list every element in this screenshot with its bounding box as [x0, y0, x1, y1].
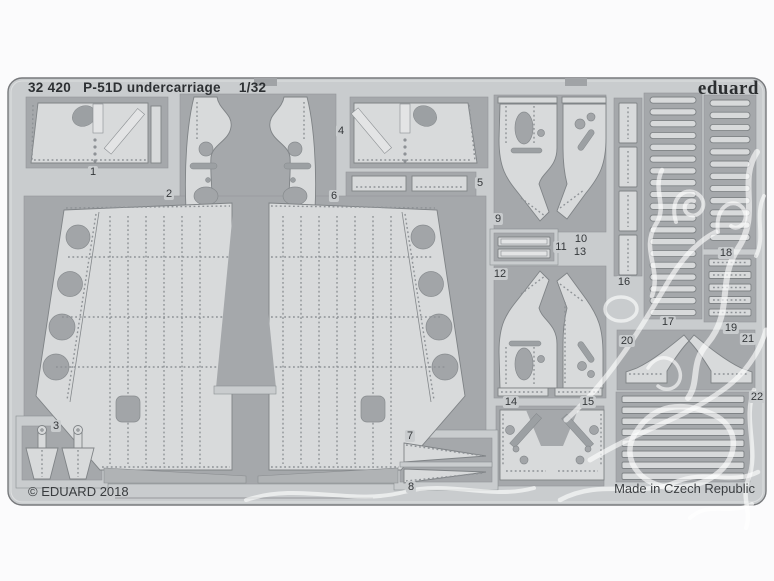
brand-logo: eduard: [698, 78, 759, 100]
product-photo: 32 420P-51D undercarriage1/32 eduard © E…: [0, 0, 774, 581]
part-14-15-shapes: [500, 410, 604, 480]
part-label-1: 1: [88, 166, 98, 178]
part-label-8: 8: [406, 481, 416, 493]
part-label-4: 4: [336, 125, 346, 137]
product-name: P-51D undercarriage: [83, 80, 221, 95]
part-label-3: 3: [51, 420, 61, 432]
part-label-13: 13: [572, 246, 588, 258]
part-label-15: 15: [580, 396, 596, 408]
catalog-number: 32 420: [28, 80, 71, 95]
part-6-shape: [269, 203, 465, 470]
part-label-18: 18: [718, 247, 734, 259]
sheet-title: 32 420P-51D undercarriage1/32: [28, 80, 278, 95]
part-label-21: 21: [740, 333, 756, 345]
part-label-17: 17: [660, 316, 676, 328]
part-1-shape: [31, 102, 161, 163]
part-label-6: 6: [329, 190, 339, 202]
part-label-5: 5: [475, 177, 485, 189]
made-in-text: Made in Czech Republic: [614, 481, 755, 496]
part-label-7: 7: [405, 430, 415, 442]
edge-notch: [565, 78, 587, 86]
part-label-11: 11: [553, 241, 568, 253]
part-2-shape: [36, 203, 232, 470]
part-4-shape: [351, 102, 477, 163]
part-label-16: 16: [616, 276, 632, 288]
copyright-text: © EDUARD 2018: [28, 484, 129, 499]
scale-text: 1/32: [239, 80, 266, 95]
part-label-20: 20: [619, 335, 635, 347]
part-label-22: 22: [749, 391, 765, 403]
part-label-9: 9: [493, 213, 503, 225]
part-label-14: 14: [503, 396, 519, 408]
part-label-2: 2: [164, 188, 174, 200]
part-label-19: 19: [723, 322, 739, 334]
part-label-10: 10: [573, 233, 589, 245]
part-label-12: 12: [492, 268, 508, 280]
